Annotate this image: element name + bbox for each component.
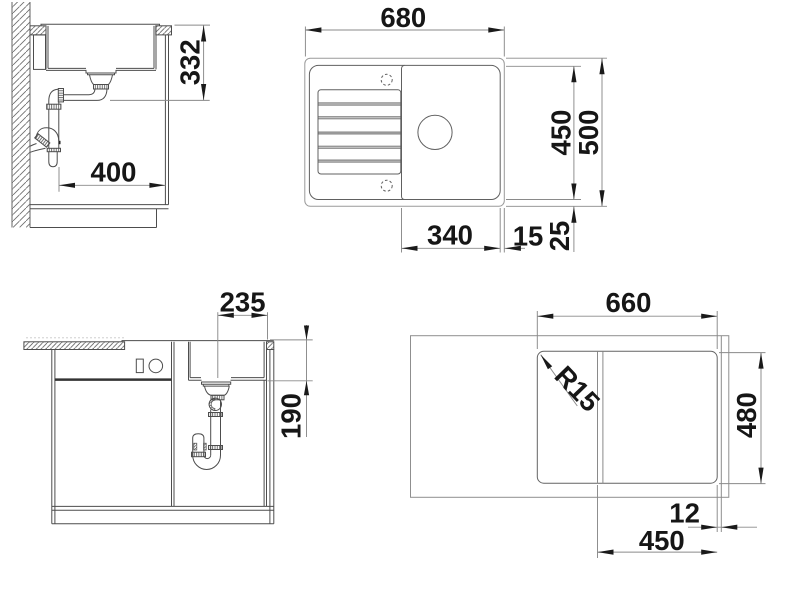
- svg-text:680: 680: [380, 2, 426, 33]
- svg-text:480: 480: [731, 392, 762, 438]
- svg-text:340: 340: [427, 220, 473, 251]
- svg-text:332: 332: [174, 39, 205, 85]
- svg-text:500: 500: [573, 110, 604, 156]
- svg-text:660: 660: [606, 287, 652, 318]
- svg-text:400: 400: [91, 157, 137, 188]
- svg-text:235: 235: [220, 286, 266, 317]
- svg-text:12: 12: [669, 497, 700, 528]
- svg-text:450: 450: [639, 525, 685, 556]
- svg-text:25: 25: [544, 221, 575, 252]
- svg-text:15: 15: [513, 220, 544, 251]
- svg-text:190: 190: [276, 393, 307, 439]
